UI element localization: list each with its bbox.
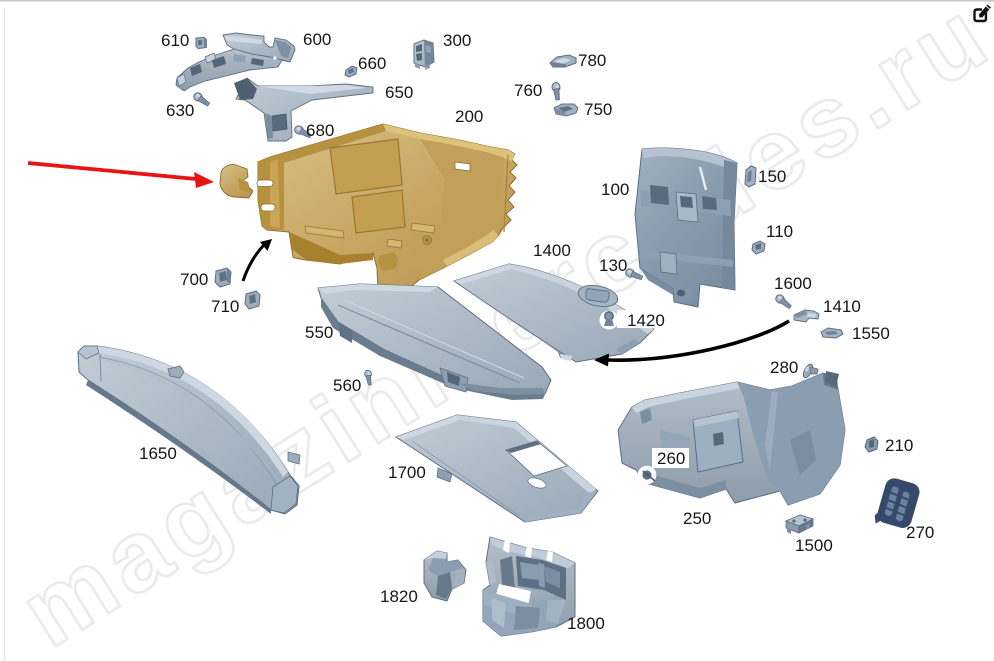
svg-text:300: 300: [443, 31, 471, 50]
svg-text:1650: 1650: [139, 444, 177, 463]
svg-text:710: 710: [211, 297, 239, 316]
svg-text:210: 210: [885, 436, 913, 455]
svg-text:780: 780: [578, 51, 606, 70]
svg-text:680: 680: [306, 121, 334, 140]
svg-text:280: 280: [770, 358, 798, 377]
svg-text:1700: 1700: [388, 463, 426, 482]
svg-text:1820: 1820: [380, 587, 418, 606]
svg-text:1550: 1550: [852, 324, 890, 343]
svg-text:760: 760: [514, 81, 542, 100]
svg-text:1400: 1400: [533, 241, 571, 260]
svg-text:260: 260: [657, 449, 685, 468]
svg-text:610: 610: [161, 31, 189, 50]
svg-text:130: 130: [599, 256, 627, 275]
svg-text:150: 150: [758, 167, 786, 186]
svg-text:650: 650: [385, 83, 413, 102]
svg-text:1500: 1500: [795, 536, 833, 555]
svg-text:660: 660: [358, 54, 386, 73]
svg-text:1800: 1800: [567, 614, 605, 633]
svg-text:100: 100: [601, 180, 629, 199]
svg-text:600: 600: [303, 30, 331, 49]
svg-text:200: 200: [455, 107, 483, 126]
svg-text:630: 630: [166, 101, 194, 120]
svg-text:270: 270: [906, 523, 934, 542]
svg-text:700: 700: [180, 270, 208, 289]
svg-text:110: 110: [766, 222, 793, 241]
svg-text:1600: 1600: [774, 274, 812, 293]
svg-text:1410: 1410: [823, 297, 861, 316]
svg-text:550: 550: [305, 323, 333, 342]
svg-text:750: 750: [584, 100, 612, 119]
svg-text:560: 560: [333, 376, 361, 395]
svg-text:1420: 1420: [627, 311, 665, 330]
svg-text:250: 250: [683, 509, 711, 528]
